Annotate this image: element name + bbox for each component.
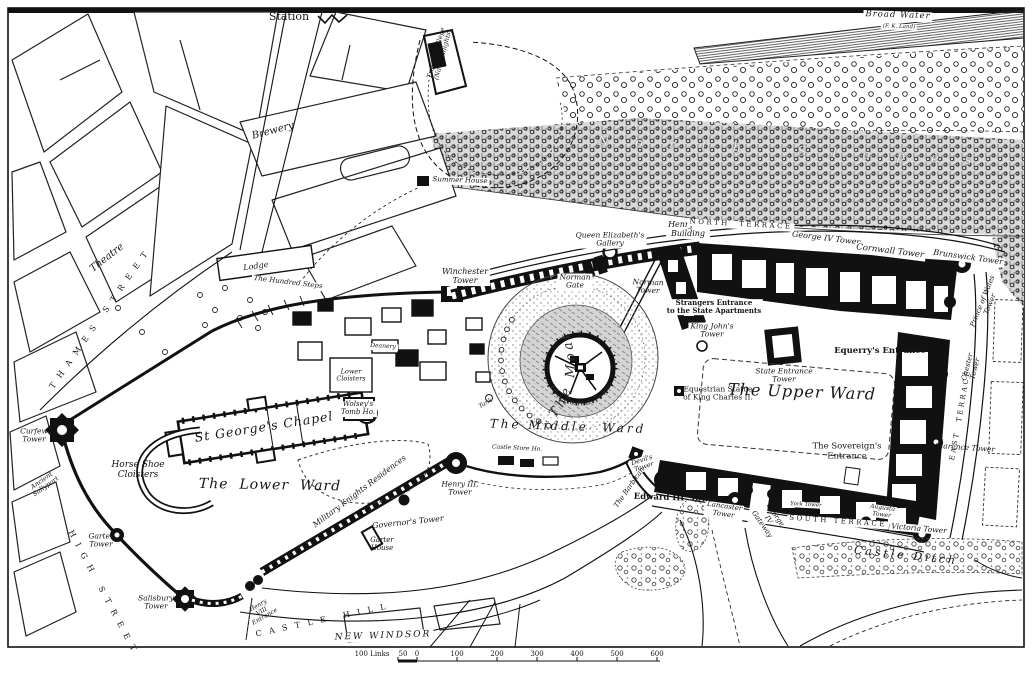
windsor-castle-plan: The Moat The Round Tower StationBreweryT… xyxy=(0,0,1033,673)
state-entrance-tower-icon xyxy=(764,326,802,365)
prince-of-wales-tower-icon xyxy=(944,296,956,308)
york-tower-icon xyxy=(793,507,804,518)
equestrian-statue-icon xyxy=(674,386,684,396)
map-canvas: The Moat The Round Tower xyxy=(0,0,1033,673)
chester-tower-icon xyxy=(936,368,948,380)
queen-elizabeths-gallery-icon xyxy=(604,246,617,259)
sovereigns-entrance-icon xyxy=(844,467,860,485)
castle-ditch-band xyxy=(792,539,1022,578)
augusta-tower-icon xyxy=(861,517,872,528)
scale-bar-graphic xyxy=(398,657,660,663)
governors-tower-icon xyxy=(399,495,410,506)
henry8-gate-icon xyxy=(245,581,255,591)
